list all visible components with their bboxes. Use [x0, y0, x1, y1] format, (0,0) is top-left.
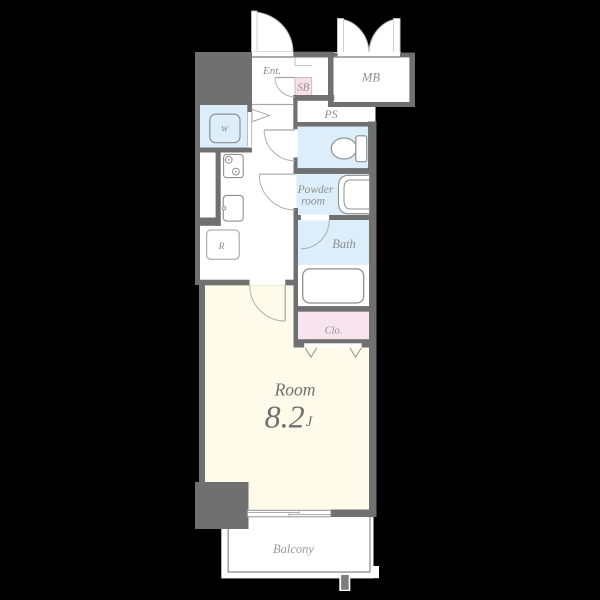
svg-text:Room: Room	[274, 380, 316, 400]
svg-text:MB: MB	[361, 71, 380, 85]
svg-text:Bath: Bath	[332, 237, 356, 251]
svg-text:Clo.: Clo.	[325, 326, 343, 337]
svg-text:R: R	[218, 242, 225, 252]
svg-text:Balcony: Balcony	[273, 542, 314, 556]
svg-text:SB: SB	[297, 82, 310, 94]
svg-text:PS: PS	[323, 107, 337, 121]
svg-text:W: W	[221, 124, 229, 134]
svg-text:Ent.: Ent.	[262, 65, 281, 77]
svg-text:room: room	[301, 196, 325, 208]
svg-text:Powder: Powder	[297, 184, 334, 196]
